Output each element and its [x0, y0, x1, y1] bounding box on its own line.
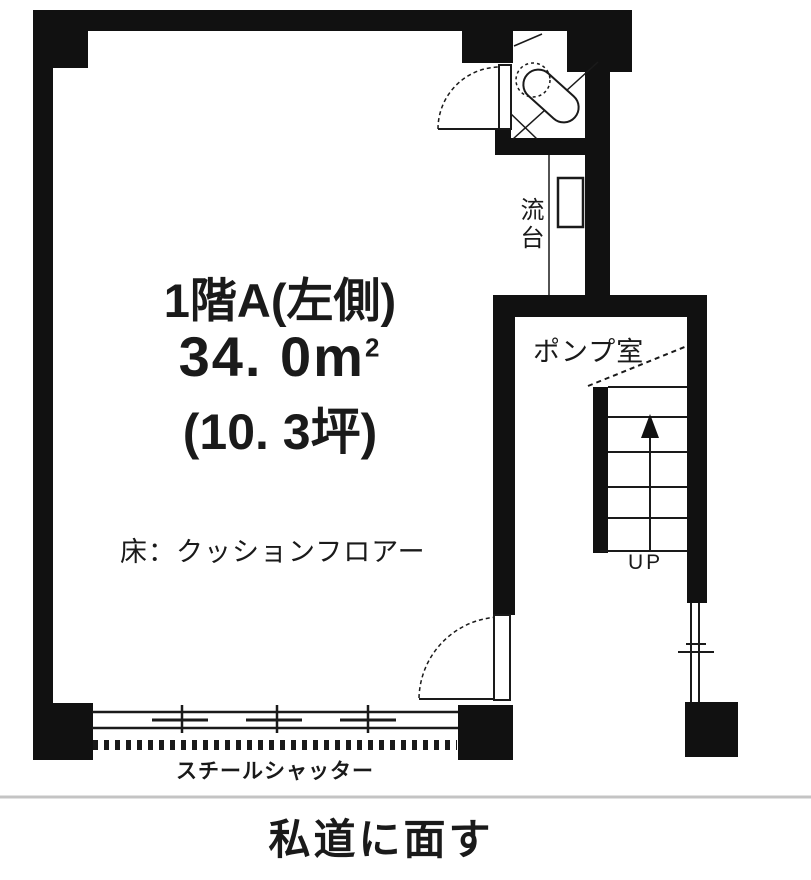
room-tsubo-label: (10. 3坪): [60, 392, 500, 464]
entry-door-leaf: [494, 615, 510, 700]
toilet-door-arc: [438, 67, 500, 129]
stairs-up-label: UP: [628, 551, 663, 575]
steel-shutter-label: スチールシャッター: [176, 755, 374, 785]
toilet-door-leaf: [499, 65, 511, 129]
wall-toilet-door-jamb: [462, 10, 513, 63]
column-top-right: [567, 10, 632, 72]
floor-note-label: 床：クッションフロアー: [120, 530, 426, 569]
wall-toilet-door-corner: [495, 128, 511, 155]
sink-nook: [549, 155, 583, 295]
toilet-diagonal-line-short: [509, 112, 537, 139]
column-bottom-left: [33, 703, 93, 760]
toilet-corner-chamfer-line: [514, 34, 542, 46]
right-window: [678, 603, 714, 702]
toilet-door: [438, 65, 511, 129]
room-name-label: 1階A(左側): [60, 262, 500, 331]
entry-door: [419, 615, 510, 700]
wall-left: [33, 10, 53, 703]
column-bottom-right-outer: [685, 702, 738, 757]
room-area-superscript: 2: [365, 332, 381, 362]
entry-door-arc: [419, 617, 502, 698]
wall-pump-right: [687, 295, 707, 603]
column-bottom-right-main: [458, 705, 513, 760]
wall-pump-top: [493, 295, 707, 317]
floor-plan-page: 1階A(左側) 34. 0m2 (10. 3坪) 床：クッションフロアー 流台 …: [0, 0, 811, 880]
sink-label: 流台: [512, 197, 547, 253]
wall-stair-side: [593, 387, 608, 553]
road-caption-label: 私道に面す: [0, 806, 762, 867]
wall-toilet-bottom: [495, 138, 610, 155]
wall-top: [33, 10, 632, 31]
room-area-value: 34. 0m: [179, 325, 365, 388]
sink-unit-icon: [558, 178, 583, 227]
wall-toilet-right: [585, 72, 610, 295]
pump-room-label: ポンプ室: [533, 330, 644, 369]
room-area-label: 34. 0m2: [60, 324, 500, 389]
storefront: [92, 705, 458, 745]
